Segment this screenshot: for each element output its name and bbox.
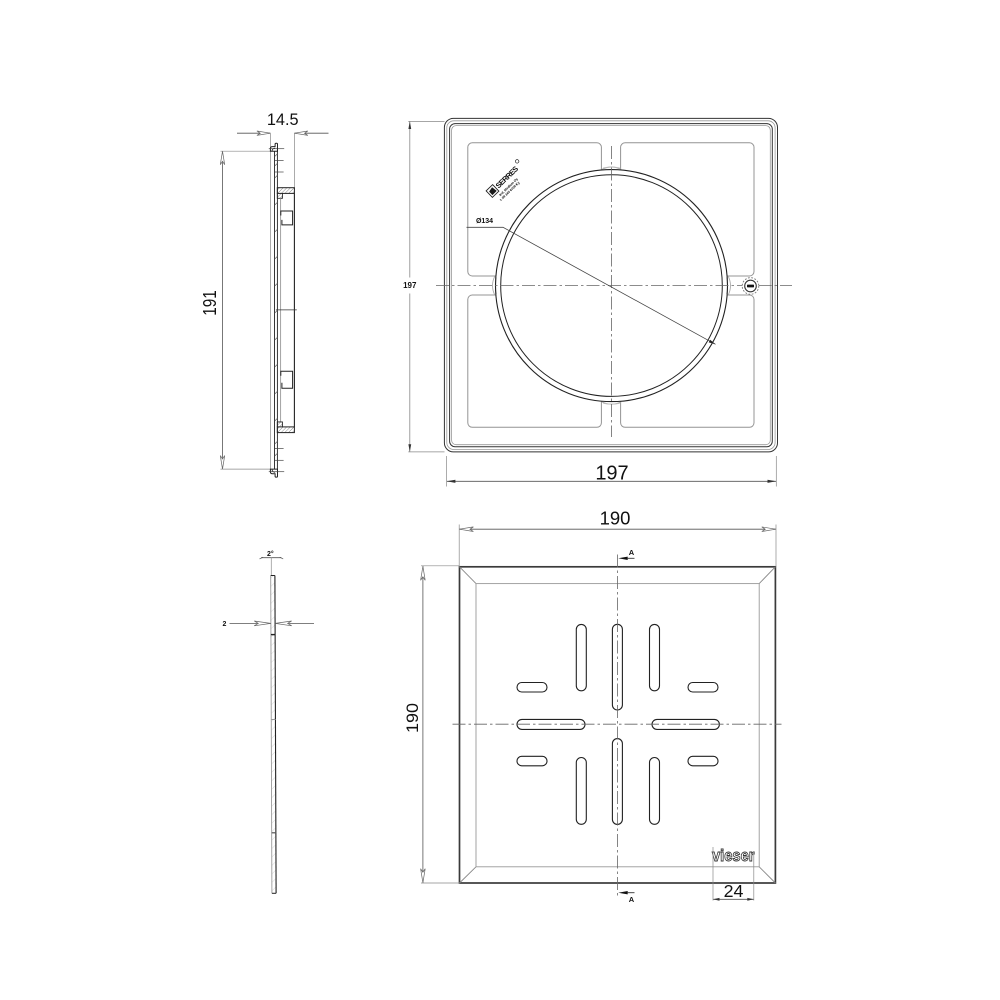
svg-text:190: 190 [600, 508, 631, 529]
svg-text:A: A [629, 895, 635, 904]
svg-text:191: 191 [199, 290, 220, 316]
svg-text:190: 190 [404, 703, 422, 733]
svg-text:14.5: 14.5 [267, 111, 299, 129]
svg-text:Ø134: Ø134 [476, 218, 493, 225]
svg-text:197: 197 [403, 281, 417, 290]
svg-text:24: 24 [724, 881, 744, 901]
svg-text:A: A [629, 548, 635, 557]
svg-text:2°: 2° [267, 550, 274, 558]
svg-text:vieser: vieser [712, 846, 755, 865]
svg-text:2: 2 [223, 621, 227, 628]
